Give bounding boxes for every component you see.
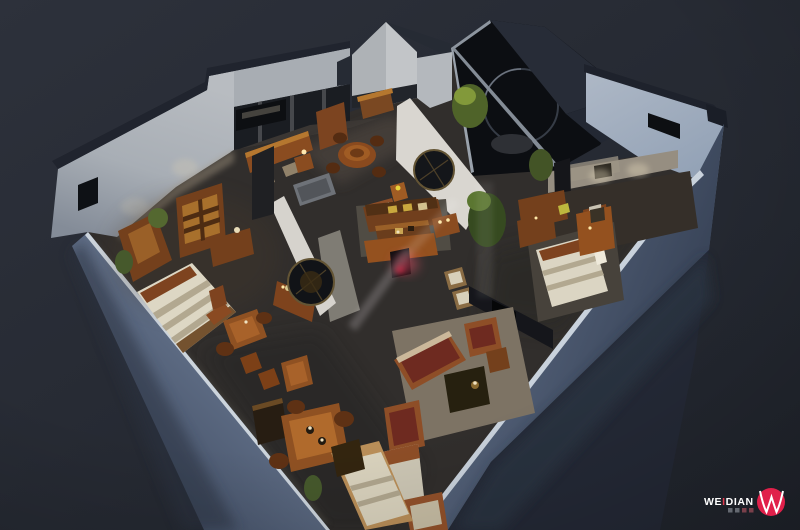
svg-text:WEIDIAN: WEIDIAN (704, 496, 754, 508)
